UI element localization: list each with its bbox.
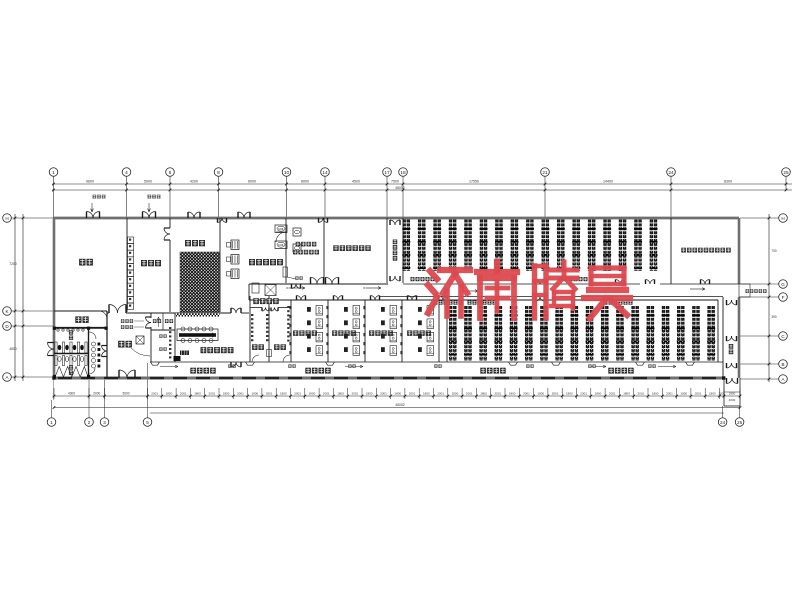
svg-text:2001: 2001 [437, 391, 444, 395]
svg-text:G: G [781, 282, 785, 287]
svg-text:17550: 17550 [469, 180, 479, 184]
svg-text:100L: 100L [278, 227, 284, 231]
svg-text:F: F [782, 295, 785, 300]
svg-text:4300: 4300 [68, 391, 75, 395]
svg-text:48052: 48052 [395, 186, 405, 190]
svg-text:24: 24 [720, 420, 726, 425]
svg-text:2001: 2001 [609, 391, 616, 395]
svg-text:7200: 7200 [9, 262, 17, 266]
svg-text:2001: 2001 [180, 391, 187, 395]
svg-text:2001: 2001 [466, 391, 473, 395]
svg-text:5: 5 [146, 420, 149, 425]
svg-text:1800: 1800 [509, 391, 516, 395]
svg-text:9600: 9600 [86, 180, 94, 184]
svg-text:6000: 6000 [248, 180, 256, 184]
svg-text:700: 700 [771, 249, 777, 253]
svg-text:1800: 1800 [337, 391, 344, 395]
svg-text:2001: 2001 [666, 391, 673, 395]
svg-text:2001: 2001 [409, 391, 416, 395]
svg-text:1: 1 [52, 170, 55, 176]
svg-text:2001: 2001 [266, 391, 273, 395]
svg-text:2001: 2001 [695, 391, 702, 395]
svg-text:14: 14 [322, 170, 328, 176]
svg-text:17: 17 [384, 170, 390, 176]
svg-text:21: 21 [542, 170, 548, 176]
svg-text:2001: 2001 [323, 391, 330, 395]
svg-text:1800: 1800 [680, 391, 687, 395]
svg-text:3: 3 [103, 420, 106, 425]
svg-text:4000: 4000 [729, 398, 736, 402]
svg-text:8: 8 [217, 170, 220, 176]
svg-text:1800: 1800 [166, 391, 173, 395]
svg-text:2001: 2001 [237, 391, 244, 395]
svg-text:1800: 1800 [194, 391, 201, 395]
svg-text:390: 390 [771, 315, 777, 319]
svg-text:1800: 1800 [652, 391, 659, 395]
svg-text:2001: 2001 [209, 391, 216, 395]
svg-text:5000: 5000 [144, 180, 152, 184]
svg-text:2001: 2001 [352, 391, 359, 395]
svg-text:48052: 48052 [395, 403, 405, 407]
svg-text:H: H [5, 216, 8, 221]
svg-text:5000: 5000 [122, 391, 129, 395]
svg-text:2001: 2001 [638, 391, 645, 395]
svg-text:1800: 1800 [394, 391, 401, 395]
svg-text:1800: 1800 [623, 391, 630, 395]
svg-text:B: B [781, 362, 784, 367]
svg-text:1800: 1800 [709, 391, 716, 395]
svg-text:2001: 2001 [495, 391, 502, 395]
svg-text:H: H [781, 216, 784, 221]
svg-text:2: 2 [88, 420, 91, 425]
svg-text:4200: 4200 [190, 180, 198, 184]
svg-text:6: 6 [169, 170, 172, 176]
svg-text:1: 1 [50, 420, 53, 425]
svg-text:4500: 4500 [352, 180, 360, 184]
svg-text:100L: 100L [278, 243, 284, 247]
svg-text:1800: 1800 [251, 391, 258, 395]
svg-text:1800: 1800 [566, 391, 573, 395]
svg-text:2001: 2001 [380, 391, 387, 395]
svg-text:2001: 2001 [523, 391, 530, 395]
svg-text:1800: 1800 [452, 391, 459, 395]
svg-text:8300: 8300 [724, 180, 732, 184]
svg-text:10: 10 [284, 170, 290, 176]
svg-text:1800: 1800 [223, 391, 230, 395]
svg-text:2000: 2000 [93, 391, 100, 395]
svg-text:4: 4 [125, 170, 128, 176]
svg-text:1800: 1800 [480, 391, 487, 395]
svg-text:1800: 1800 [309, 391, 316, 395]
svg-text:25: 25 [783, 170, 789, 176]
svg-text:25: 25 [737, 420, 743, 425]
svg-text:1800: 1800 [595, 391, 602, 395]
svg-text:4800: 4800 [9, 347, 17, 351]
svg-text:7500: 7500 [391, 180, 399, 184]
svg-text:2001: 2001 [580, 391, 587, 395]
svg-text:8000: 8000 [301, 180, 309, 184]
svg-text:1800: 1800 [366, 391, 373, 395]
svg-text:2001: 2001 [294, 391, 301, 395]
svg-text:1800: 1800 [537, 391, 544, 395]
svg-text:18: 18 [400, 170, 406, 176]
svg-text:1800: 1800 [423, 391, 430, 395]
svg-text:2001: 2001 [552, 391, 559, 395]
svg-text:24: 24 [668, 170, 674, 176]
svg-text:14400: 14400 [603, 180, 613, 184]
svg-text:1800: 1800 [280, 391, 287, 395]
svg-text:2001: 2001 [151, 391, 158, 395]
